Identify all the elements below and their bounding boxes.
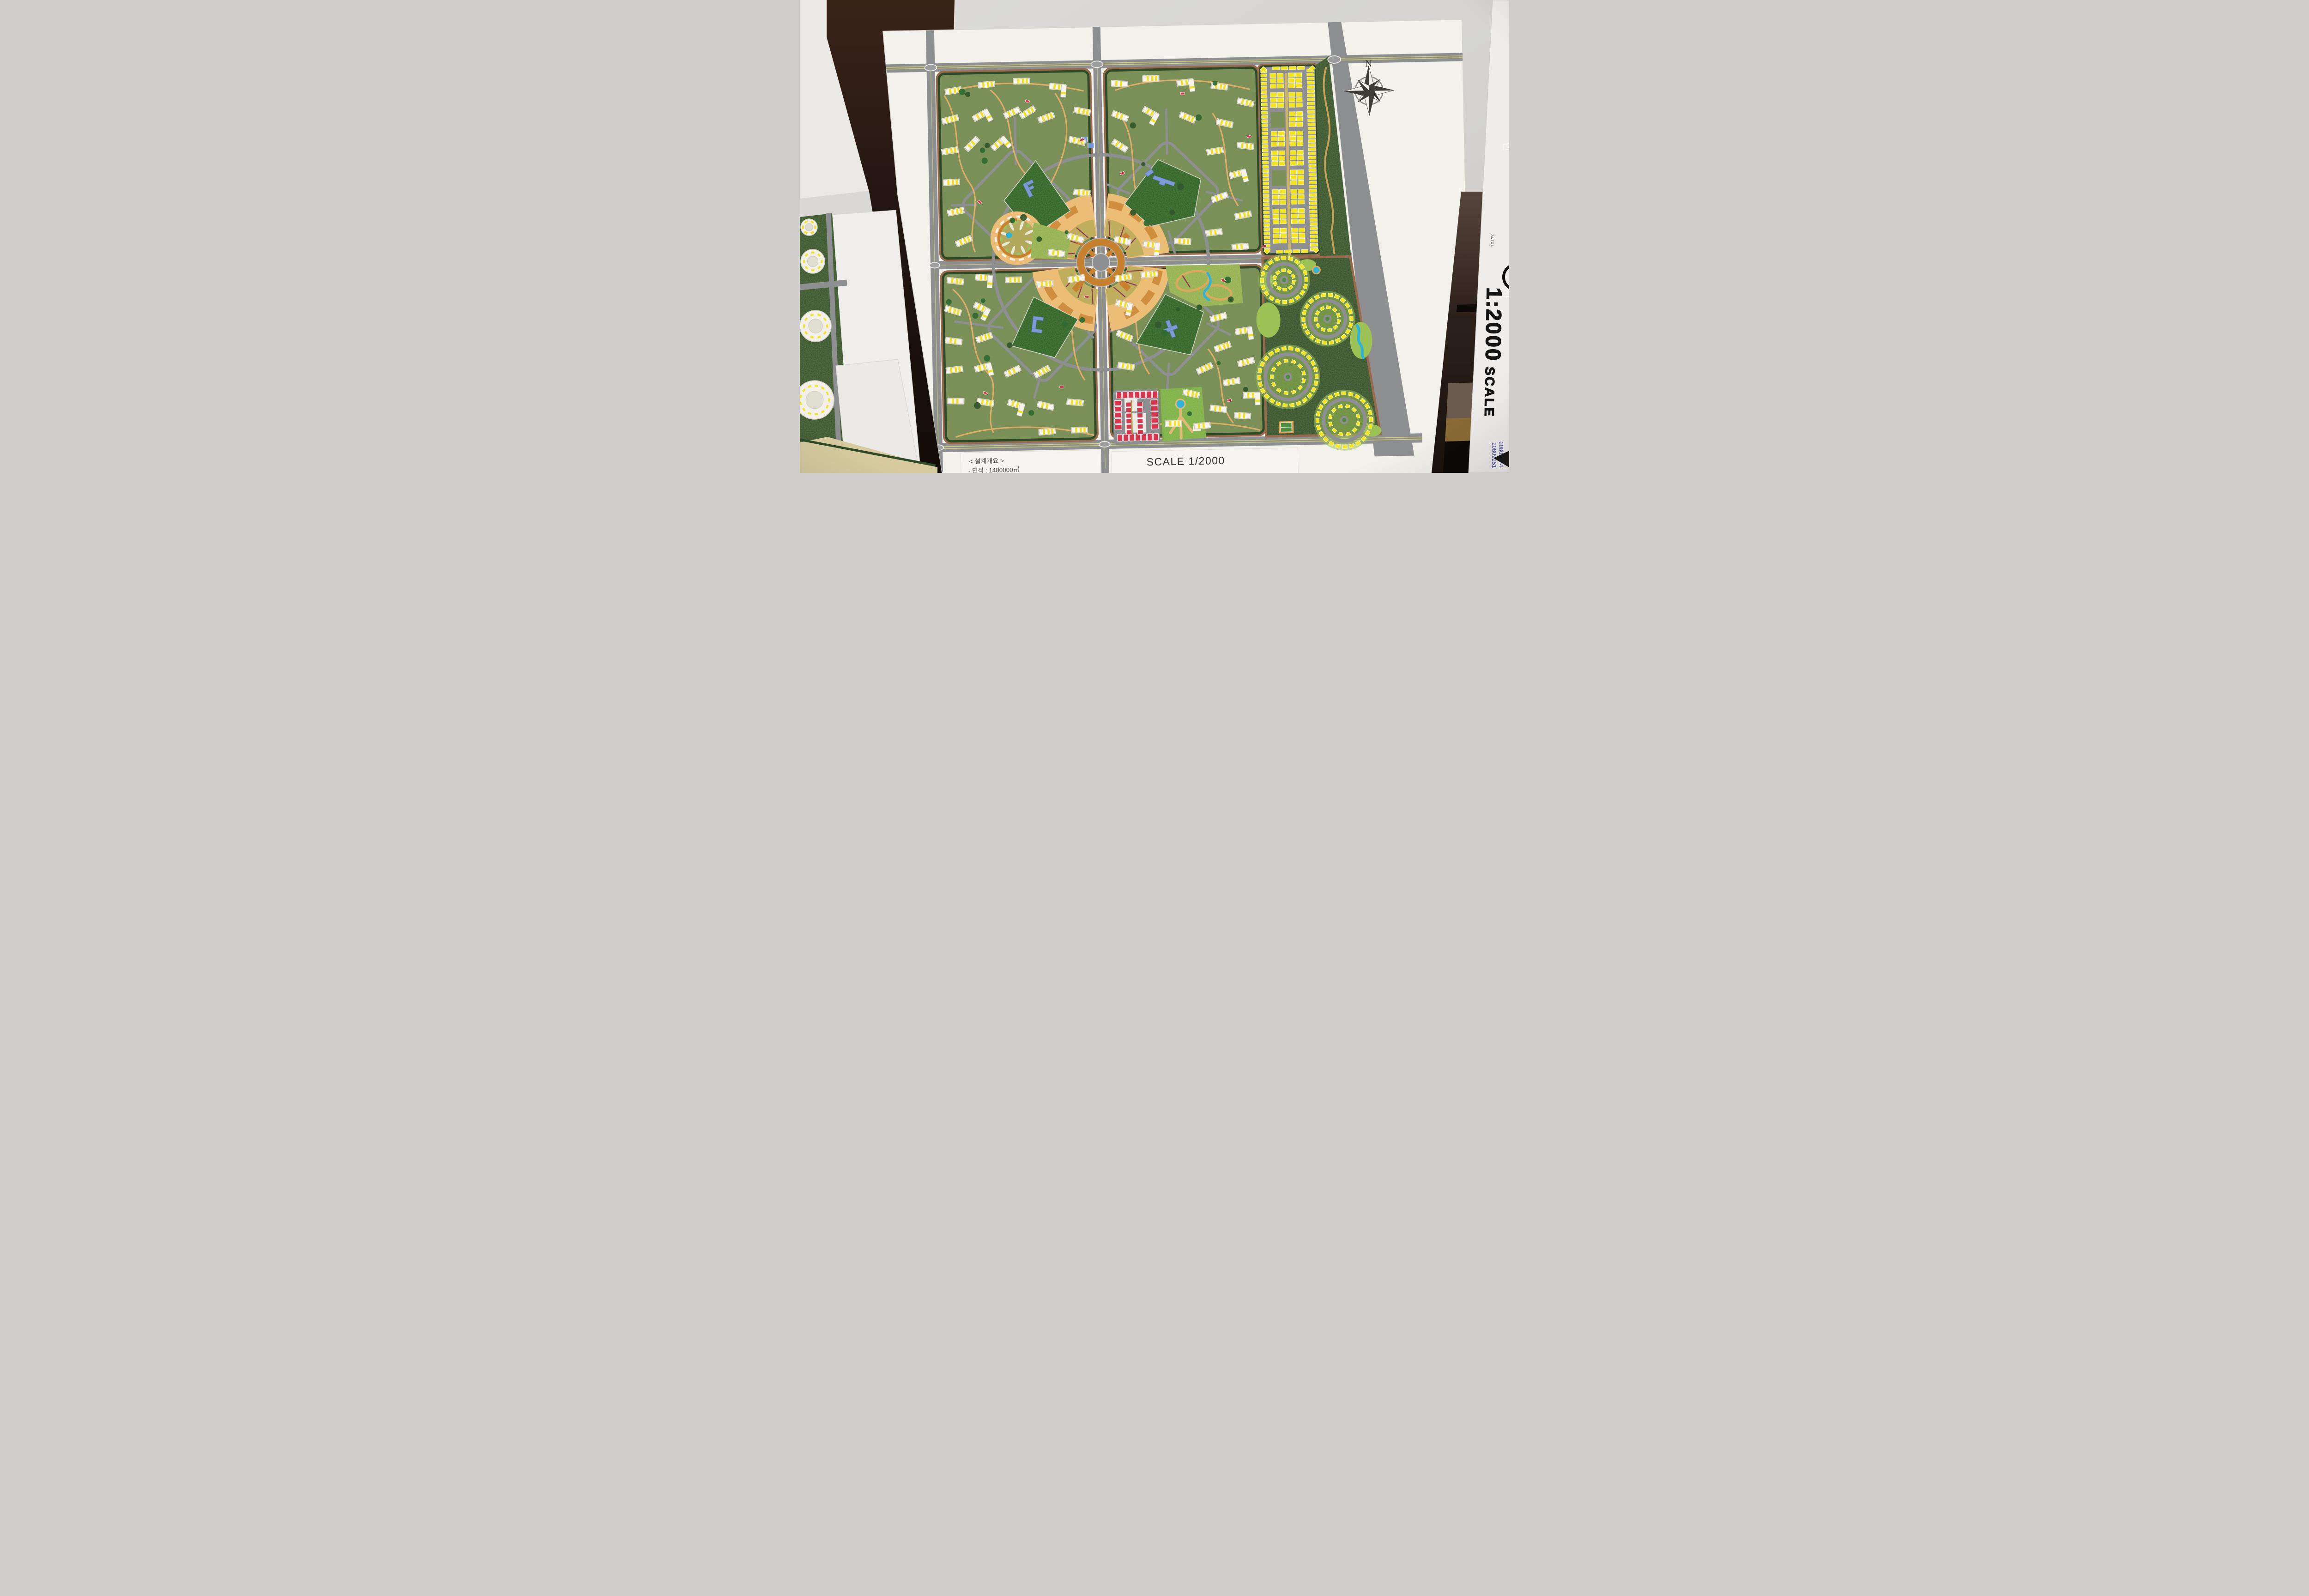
tennis-court [1279,421,1294,434]
car [1085,296,1089,298]
svg-text:한: 한 [1501,142,1509,152]
apartment-building [1013,78,1030,85]
car [1060,386,1064,388]
north-label: N [1365,58,1372,69]
apartment-building [1071,427,1088,434]
rowhouse-district [1258,64,1320,256]
fragment-cluster [801,219,817,236]
scale-title: SCALE 1/2000 [1146,454,1225,468]
fragment-cluster [800,310,831,342]
road-stub-n-center [1093,26,1101,63]
pen-id-2: 20809251 [1491,442,1497,468]
apartment-building [1142,75,1159,82]
apartment-building [1005,277,1022,284]
market-complex-red [1113,389,1160,445]
scale-panel: SCALE 1/2000 0 100 250 500M [1111,448,1298,473]
overview-heading: < 설계개요 > [969,457,1004,465]
svg-text:AUTOB: AUTOB [1490,235,1493,247]
fragment-cluster [800,381,834,419]
apartment-building [943,179,961,186]
fine-print-vertical: AUTOB [1490,235,1493,247]
car [1180,92,1185,95]
fragment-cluster [801,249,825,273]
car [1262,245,1266,247]
scene-canvas: N < 설계개요 > - 면적 : 1480000㎡ - 총 인구 : 17,5… [800,0,1509,473]
overview-area-line: - 면적 : 1480000㎡ [968,466,1020,473]
apartment-building [1231,243,1249,250]
apartment-building [1165,420,1182,427]
apartment-building [1234,412,1251,419]
roundabout-island [1092,254,1110,272]
pond [1176,399,1185,409]
design-overview-panel: < 설계개요 > - 면적 : 1480000㎡ - 총 인구 : 17,571… [961,450,1100,473]
apartment-building [1174,238,1191,245]
main-board-group: N < 설계개요 > - 면적 : 1480000㎡ - 총 인구 : 17,5… [882,11,1472,473]
photo-of-model-board: N < 설계개요 > - 면적 : 1480000㎡ - 총 인구 : 17,5… [800,0,1509,473]
apartment-building [947,398,964,405]
park-pond [1312,266,1320,274]
apartment-building [1111,80,1128,87]
faint-wall-character-1: 한 [1501,142,1509,152]
